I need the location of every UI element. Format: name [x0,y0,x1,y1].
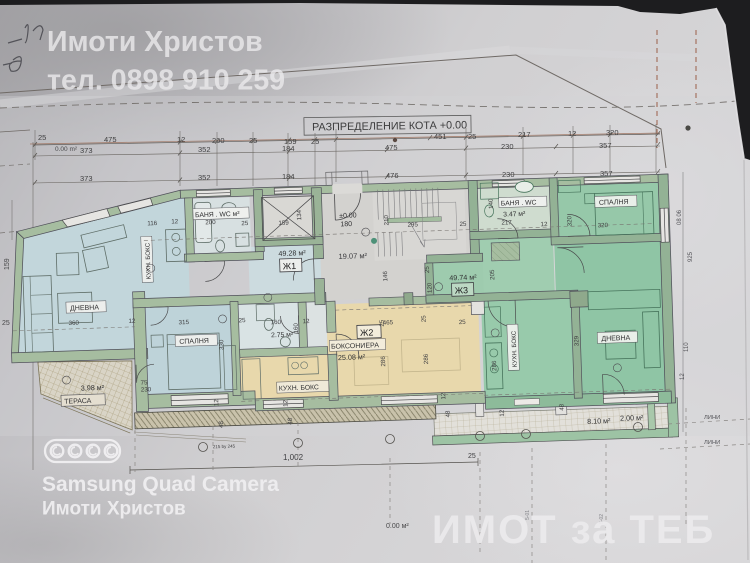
svg-text:Ж3: Ж3 [455,285,469,295]
svg-text:25: 25 [424,266,431,274]
svg-text:12: 12 [680,373,686,380]
svg-text:12: 12 [213,399,220,407]
svg-text:320: 320 [606,128,619,137]
svg-text:12: 12 [440,392,447,400]
svg-text:205: 205 [489,269,496,280]
svg-text:12: 12 [171,218,179,225]
svg-text:25: 25 [2,320,10,327]
svg-text:180: 180 [340,221,352,228]
svg-text:373: 373 [80,146,93,155]
svg-text:25: 25 [379,319,386,327]
svg-text:315: 315 [179,319,190,326]
svg-text:БАНЯ . WC м²: БАНЯ . WC м² [195,211,240,219]
svg-text:КУХН. БОКС: КУХН. БОКС [511,330,519,367]
svg-text:286: 286 [423,353,430,364]
svg-text:217: 217 [501,219,512,226]
svg-text:БАНЯ . WC: БАНЯ . WC [501,199,537,207]
svg-text:48: 48 [218,420,225,428]
svg-text:200: 200 [205,219,216,226]
svg-text:48: 48 [559,403,566,411]
svg-text:146: 146 [382,270,389,281]
svg-text:ЛИНИ: ЛИНИ [704,415,720,421]
svg-text:Имоти Христов: Имоти Христов [47,26,263,58]
svg-text:329: 329 [573,335,580,346]
svg-text:160: 160 [293,322,300,333]
svg-text:49.28 м²: 49.28 м² [278,248,306,258]
svg-text:КУХН. БОКС: КУХН. БОКС [144,242,152,279]
svg-text:25: 25 [468,132,476,141]
svg-text:12: 12 [303,318,311,325]
svg-text:475: 475 [385,143,398,152]
svg-text:25: 25 [468,453,476,460]
svg-text:48: 48 [287,417,294,425]
svg-text:12: 12 [282,399,289,407]
svg-text:352: 352 [198,173,211,182]
svg-text:19.07 м²: 19.07 м² [338,251,367,261]
svg-text:200: 200 [212,136,225,145]
svg-text:3.98 м²: 3.98 м² [81,383,105,393]
svg-text:475: 475 [104,135,117,144]
svg-text:230: 230 [501,142,514,151]
svg-text:25: 25 [241,220,249,227]
svg-text:8.10 м²: 8.10 м² [587,416,611,426]
svg-text:Samsung Quad Camera: Samsung Quad Camera [42,473,279,496]
svg-text:ИМОТ за ТЕБ: ИМОТ за ТЕБ [432,508,715,552]
svg-text:ТЕРАСА: ТЕРАСА [64,398,92,406]
svg-text:±0.00: ±0.00 [339,212,357,220]
svg-text:357: 357 [599,141,612,150]
svg-text:286: 286 [380,356,387,367]
svg-text:08 06: 08 06 [677,209,683,225]
svg-text:140: 140 [488,198,495,209]
svg-text:СПАЛНЯ: СПАЛНЯ [179,338,209,346]
svg-text:320: 320 [598,222,609,229]
svg-text:Ж1: Ж1 [283,261,297,271]
svg-text:25: 25 [38,133,46,142]
svg-text:12: 12 [177,135,185,144]
svg-text:134: 134 [296,209,303,220]
svg-text:Имоти Христов: Имоти Христов [42,499,186,520]
svg-text:160: 160 [271,319,282,326]
svg-text:тел. 0898 910 259: тел. 0898 910 259 [47,65,285,97]
svg-text:159: 159 [278,220,289,227]
svg-text:373: 373 [80,174,93,183]
svg-text:1,002: 1,002 [283,453,304,462]
svg-text:925: 925 [688,251,694,262]
svg-text:120: 120 [426,282,433,293]
svg-text:49.74 м²: 49.74 м² [449,272,477,282]
svg-text:СПАЛНЯ: СПАЛНЯ [599,199,629,207]
svg-text:25: 25 [459,221,467,228]
svg-text:320: 320 [566,215,573,226]
svg-text:3.47 м²: 3.47 м² [503,211,526,219]
svg-text:48: 48 [445,410,452,418]
svg-text:Ж2: Ж2 [360,327,374,337]
svg-text:286: 286 [491,360,498,371]
svg-text:330: 330 [218,339,225,350]
svg-text:110: 110 [684,342,690,352]
svg-text:12: 12 [499,409,506,417]
svg-text:360: 360 [68,320,79,327]
svg-text:2.75 м²: 2.75 м² [271,332,294,340]
svg-text:159: 159 [4,258,11,270]
svg-text:451: 451 [434,132,447,141]
svg-text:КУХН. БОКС: КУХН. БОКС [279,384,319,392]
svg-text:0.00 м²: 0.00 м² [386,523,409,530]
svg-text:2.00 м²: 2.00 м² [620,413,644,423]
svg-text:215 by 245: 215 by 245 [213,444,236,450]
svg-text:295: 295 [407,221,418,228]
svg-text:210: 210 [383,214,390,225]
svg-text:25: 25 [238,317,246,324]
svg-text:352: 352 [198,145,211,154]
svg-text:ЛИНИ: ЛИНИ [704,440,720,446]
svg-text:12: 12 [128,318,136,325]
svg-text:116: 116 [147,220,158,227]
svg-text:25: 25 [459,319,467,326]
svg-text:ДНЕВНА: ДНЕВНА [70,304,99,312]
svg-text:230: 230 [502,170,515,179]
svg-text:25.08 м²: 25.08 м² [338,352,366,362]
svg-text:25: 25 [421,315,428,323]
svg-text:ДНЕВНА: ДНЕВНА [601,335,630,343]
svg-text:230: 230 [141,386,152,393]
svg-text:0.00 m²: 0.00 m² [55,146,78,153]
